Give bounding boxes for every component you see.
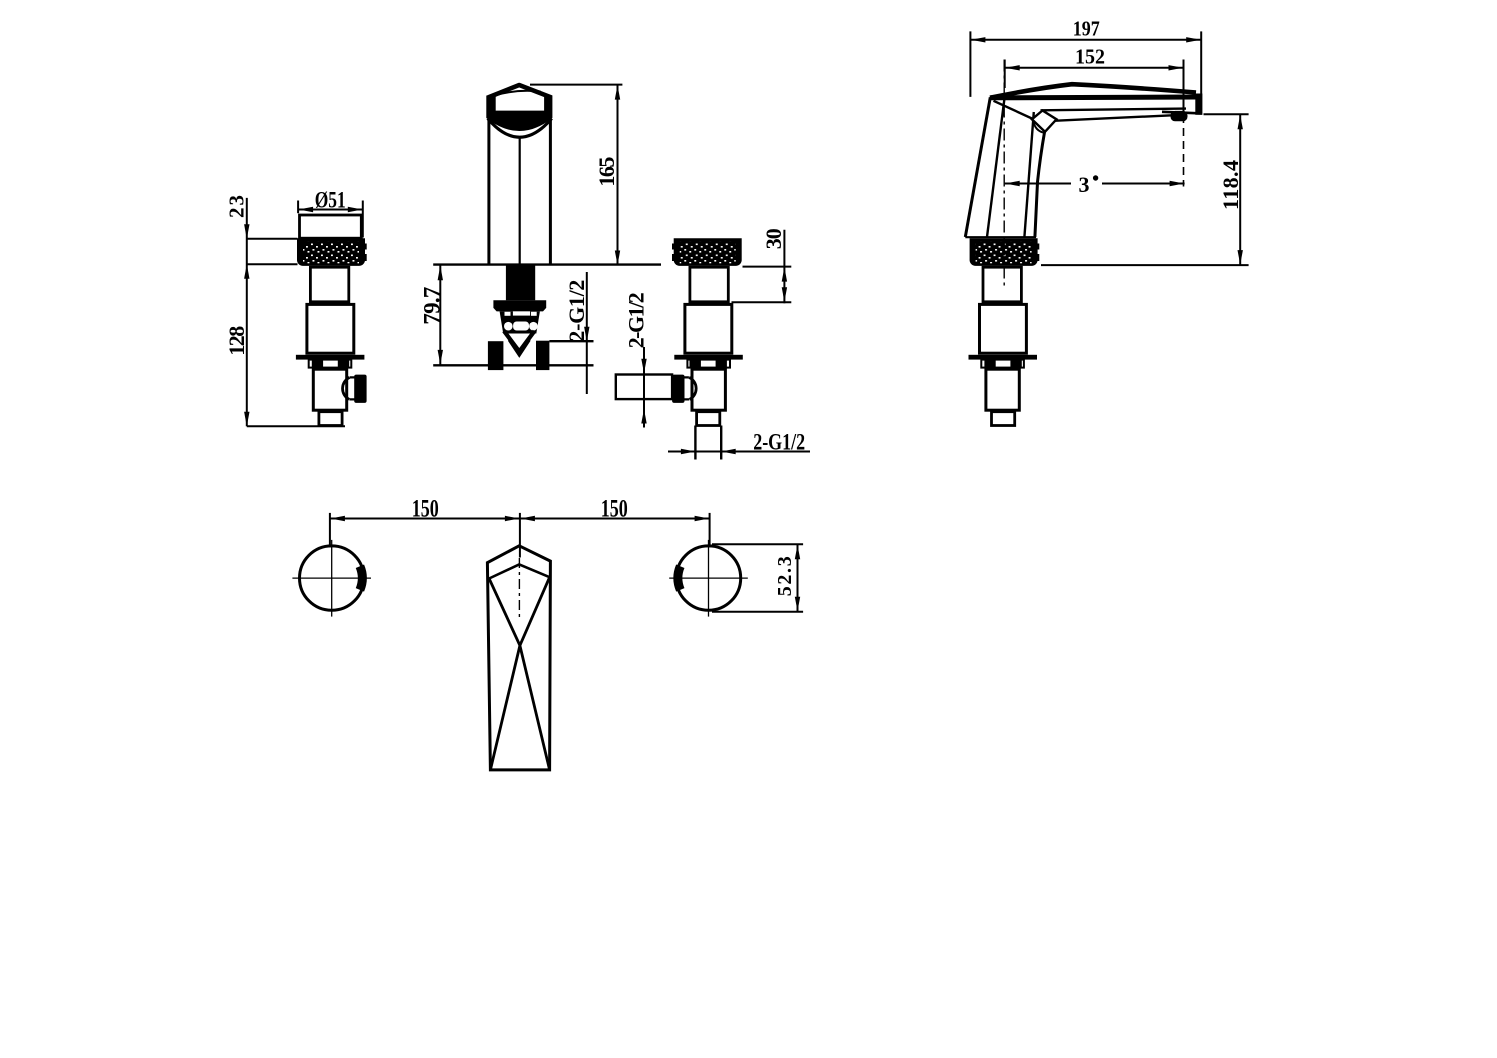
svg-text:165: 165	[594, 157, 619, 187]
svg-text:152: 152	[1075, 45, 1105, 69]
svg-text:197: 197	[1073, 16, 1100, 40]
svg-text:79.7: 79.7	[420, 287, 445, 325]
svg-text:2-G1/2: 2-G1/2	[624, 292, 649, 348]
svg-text:2-G1/2: 2-G1/2	[753, 430, 805, 455]
svg-text:118.4: 118.4	[1218, 160, 1243, 210]
svg-text:52.3: 52.3	[774, 556, 796, 596]
svg-text:150: 150	[412, 496, 439, 523]
svg-text:3: 3	[1079, 172, 1090, 197]
svg-text:150: 150	[601, 496, 628, 523]
svg-text:30: 30	[761, 228, 786, 249]
svg-text:128: 128	[224, 326, 249, 356]
svg-text:2-G1/2: 2-G1/2	[564, 280, 589, 342]
svg-text:Ø51: Ø51	[315, 188, 346, 213]
